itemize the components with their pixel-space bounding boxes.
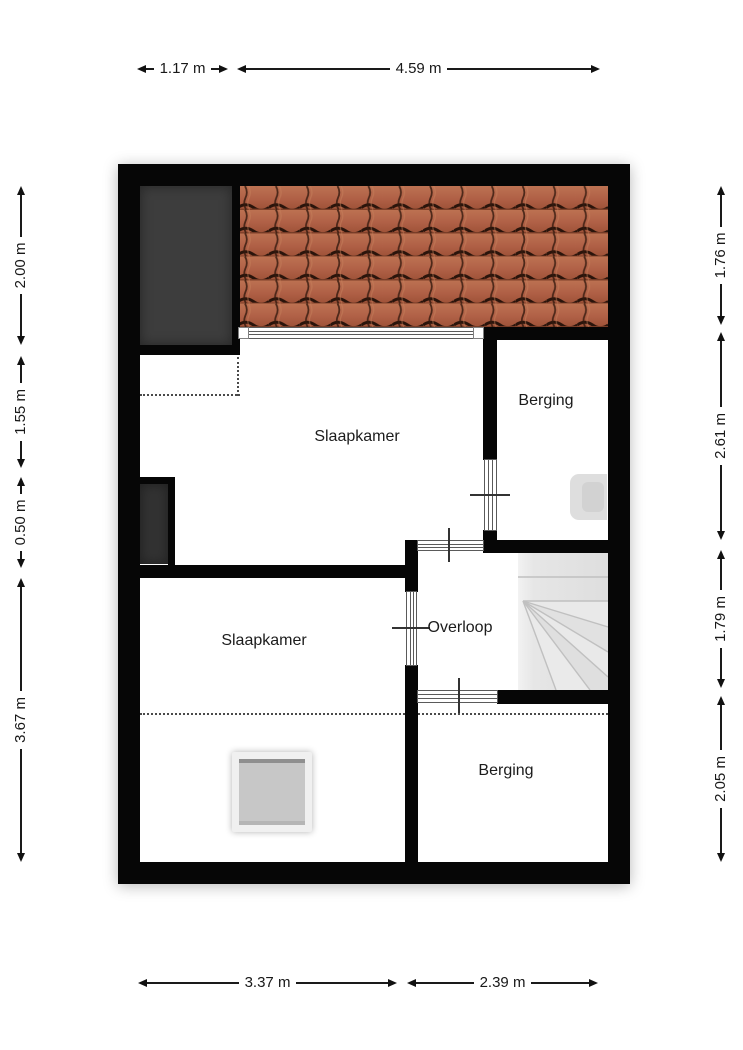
arrow-left-icon [237, 65, 246, 73]
dimension-right-4: 2.05 m [713, 696, 729, 862]
opening-tick [448, 528, 450, 562]
arrow-left-icon [138, 979, 147, 987]
outer-wall-right [608, 164, 630, 884]
dimension-bottom-2: 2.39 m [407, 975, 598, 991]
arrow-left-icon [137, 65, 146, 73]
window-cap [238, 327, 249, 339]
window-cap [473, 327, 484, 339]
room-label-slaapkamer-top: Slaapkamer [314, 428, 399, 446]
door-overloop [406, 591, 417, 666]
dimension-label: 0.50 m [13, 494, 29, 552]
roof-tiles [238, 186, 608, 327]
opening-tick [392, 627, 430, 629]
room-label-berging-bottom: Berging [478, 762, 533, 780]
chimney-shaft [140, 186, 232, 345]
dimension-left-1: 2.00 m [13, 186, 29, 345]
room-label-overloop: Overloop [428, 619, 493, 637]
dimension-right-2: 2.61 m [713, 332, 729, 540]
outer-wall-left [118, 164, 140, 884]
arrow-left-icon [407, 979, 416, 987]
window-overloop-top [417, 540, 484, 551]
dimension-left-3: 0.50 m [13, 477, 29, 568]
dimension-left-4: 3.67 m [13, 578, 29, 862]
wall [497, 690, 608, 704]
room-label-berging-top: Berging [518, 392, 573, 410]
arrow-right-icon [388, 979, 397, 987]
arrow-right-icon [17, 578, 25, 587]
wall [140, 565, 418, 578]
wall [483, 327, 608, 340]
dimension-label: 3.37 m [239, 975, 297, 991]
wall [168, 477, 175, 565]
dimension-label: 2.00 m [13, 237, 29, 295]
dimension-bottom-1: 3.37 m [138, 975, 397, 991]
arrow-right-icon [717, 186, 725, 195]
dotted-line [237, 357, 239, 396]
dimension-label: 2.05 m [713, 750, 729, 808]
dimension-right-3: 1.79 m [713, 550, 729, 688]
dimension-label: 1.76 m [713, 227, 729, 285]
wall [140, 345, 240, 355]
arrow-right-icon [17, 186, 25, 195]
arrow-left-icon [717, 531, 725, 540]
dimension-right-1: 1.76 m [713, 186, 729, 325]
window-roof [240, 327, 483, 339]
arrow-right-icon [17, 356, 25, 365]
skylight-window [232, 752, 312, 832]
chimney-shaft-small [140, 484, 168, 564]
outer-wall-bottom [118, 862, 630, 884]
arrow-right-icon [717, 696, 725, 705]
arrow-left-icon [17, 459, 25, 468]
opening-tick [458, 678, 460, 714]
dimension-left-2: 1.55 m [13, 356, 29, 468]
arrow-right-icon [717, 332, 725, 341]
arrow-left-icon [17, 336, 25, 345]
arrow-right-icon [17, 477, 25, 486]
dimension-label: 2.39 m [474, 975, 532, 991]
arrow-right-icon [219, 65, 228, 73]
dotted-line [140, 394, 240, 396]
dotted-line [140, 713, 405, 715]
arrow-left-icon [17, 559, 25, 568]
arrow-left-icon [17, 853, 25, 862]
dimension-top-1: 1.17 m [137, 61, 228, 77]
opening-tick [470, 494, 510, 496]
dimension-top-2: 4.59 m [237, 61, 600, 77]
dimension-label: 3.67 m [13, 691, 29, 749]
skylight-glass [239, 759, 305, 825]
arrow-left-icon [717, 316, 725, 325]
arrow-right-icon [591, 65, 600, 73]
arrow-right-icon [717, 550, 725, 559]
boiler-unit [570, 474, 607, 520]
dimension-label: 1.17 m [154, 61, 212, 77]
dimension-label: 1.55 m [13, 383, 29, 441]
boiler-detail [582, 482, 604, 512]
stairs-winder [518, 553, 608, 690]
dimension-label: 1.79 m [713, 590, 729, 648]
dotted-line [418, 713, 608, 715]
arrow-left-icon [717, 679, 725, 688]
wall [483, 540, 608, 553]
arrow-right-icon [589, 979, 598, 987]
dimension-label: 2.61 m [713, 407, 729, 465]
wall [483, 340, 497, 460]
room-label-slaapkamer-bottom: Slaapkamer [221, 632, 306, 650]
arrow-left-icon [717, 853, 725, 862]
dimension-label: 4.59 m [390, 61, 448, 77]
floorplan-canvas: 1.17 m 4.59 m 3.37 m 2.39 m 2.00 m 1.55 … [0, 0, 743, 1050]
outer-wall-top [118, 164, 630, 186]
